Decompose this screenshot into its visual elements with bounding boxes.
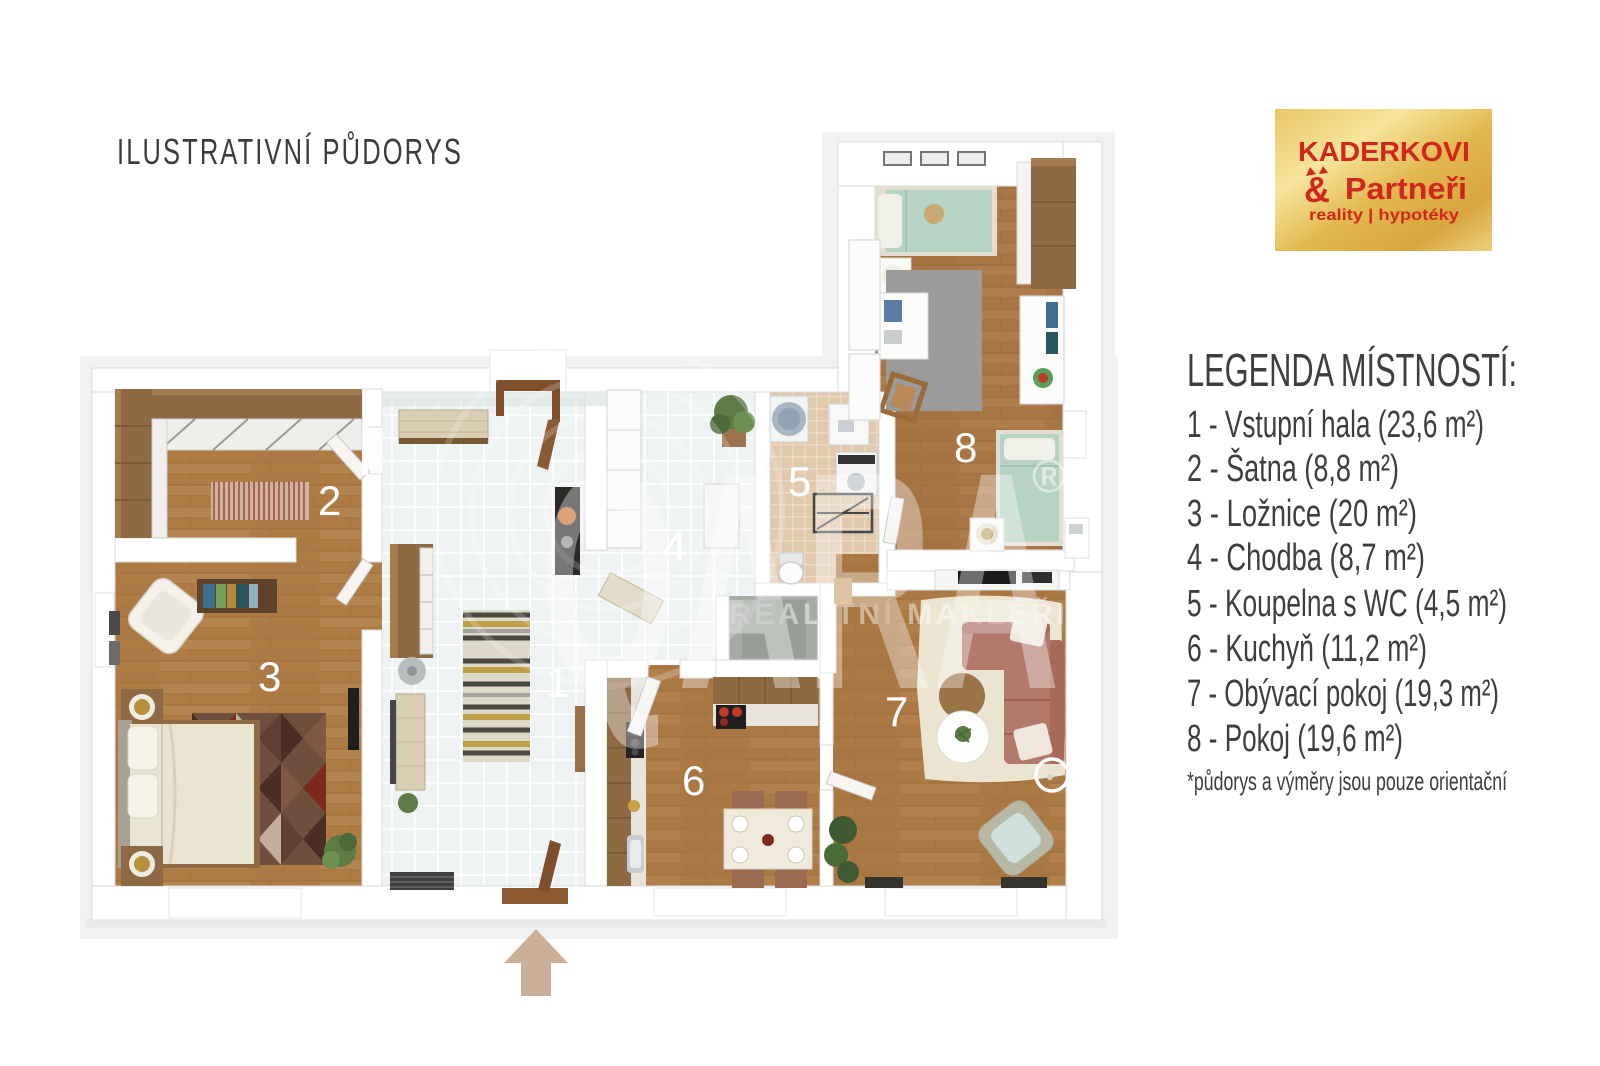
svg-text:8: 8 — [954, 424, 977, 471]
svg-text:REALITNÍ MAKLÉŘI: REALITNÍ MAKLÉŘI — [729, 597, 1068, 631]
svg-text:2: 2 — [318, 477, 341, 524]
svg-text:5 - Koupelna s WC (4,5 m²): 5 - Koupelna s WC (4,5 m²) — [1187, 583, 1507, 625]
svg-text:2 - Šatna (8,8 m²): 2 - Šatna (8,8 m²) — [1187, 446, 1399, 490]
svg-text:LEGENDA MÍSTNOSTÍ:: LEGENDA MÍSTNOSTÍ: — [1187, 344, 1517, 396]
svg-text:6 - Kuchyň (11,2 m²): 6 - Kuchyň (11,2 m²) — [1187, 628, 1427, 670]
svg-text:6: 6 — [682, 757, 705, 804]
svg-text:1 - Vstupní hala (23,6 m²): 1 - Vstupní hala (23,6 m²) — [1187, 404, 1484, 446]
svg-text:5: 5 — [788, 458, 811, 505]
svg-text:KADERKOVI: KADERKOVI — [1298, 136, 1470, 167]
svg-text:8 - Pokoj (19,6 m²): 8 - Pokoj (19,6 m²) — [1187, 718, 1403, 760]
svg-text:7 - Obývací pokoj (19,3 m²): 7 - Obývací pokoj (19,3 m²) — [1187, 673, 1499, 715]
svg-text:4 - Chodba (8,7 m²): 4 - Chodba (8,7 m²) — [1187, 537, 1425, 579]
svg-text:3 - Ložnice (20 m²): 3 - Ložnice (20 m²) — [1187, 493, 1417, 535]
svg-text:®: ® — [1032, 450, 1066, 502]
svg-text:1: 1 — [546, 659, 569, 706]
svg-text:7: 7 — [885, 688, 908, 735]
svg-text:3: 3 — [258, 653, 281, 700]
svg-text:reality | hypotéky: reality | hypotéky — [1309, 207, 1459, 224]
svg-text:ILUSTRATIVNÍ PŮDORYS: ILUSTRATIVNÍ PŮDORYS — [117, 130, 463, 172]
svg-text:Partneři: Partneři — [1345, 171, 1467, 206]
svg-text:4: 4 — [663, 523, 686, 570]
svg-text:*půdorys a výměry jsou pouze o: *půdorys a výměry jsou pouze orientační — [1187, 766, 1508, 796]
